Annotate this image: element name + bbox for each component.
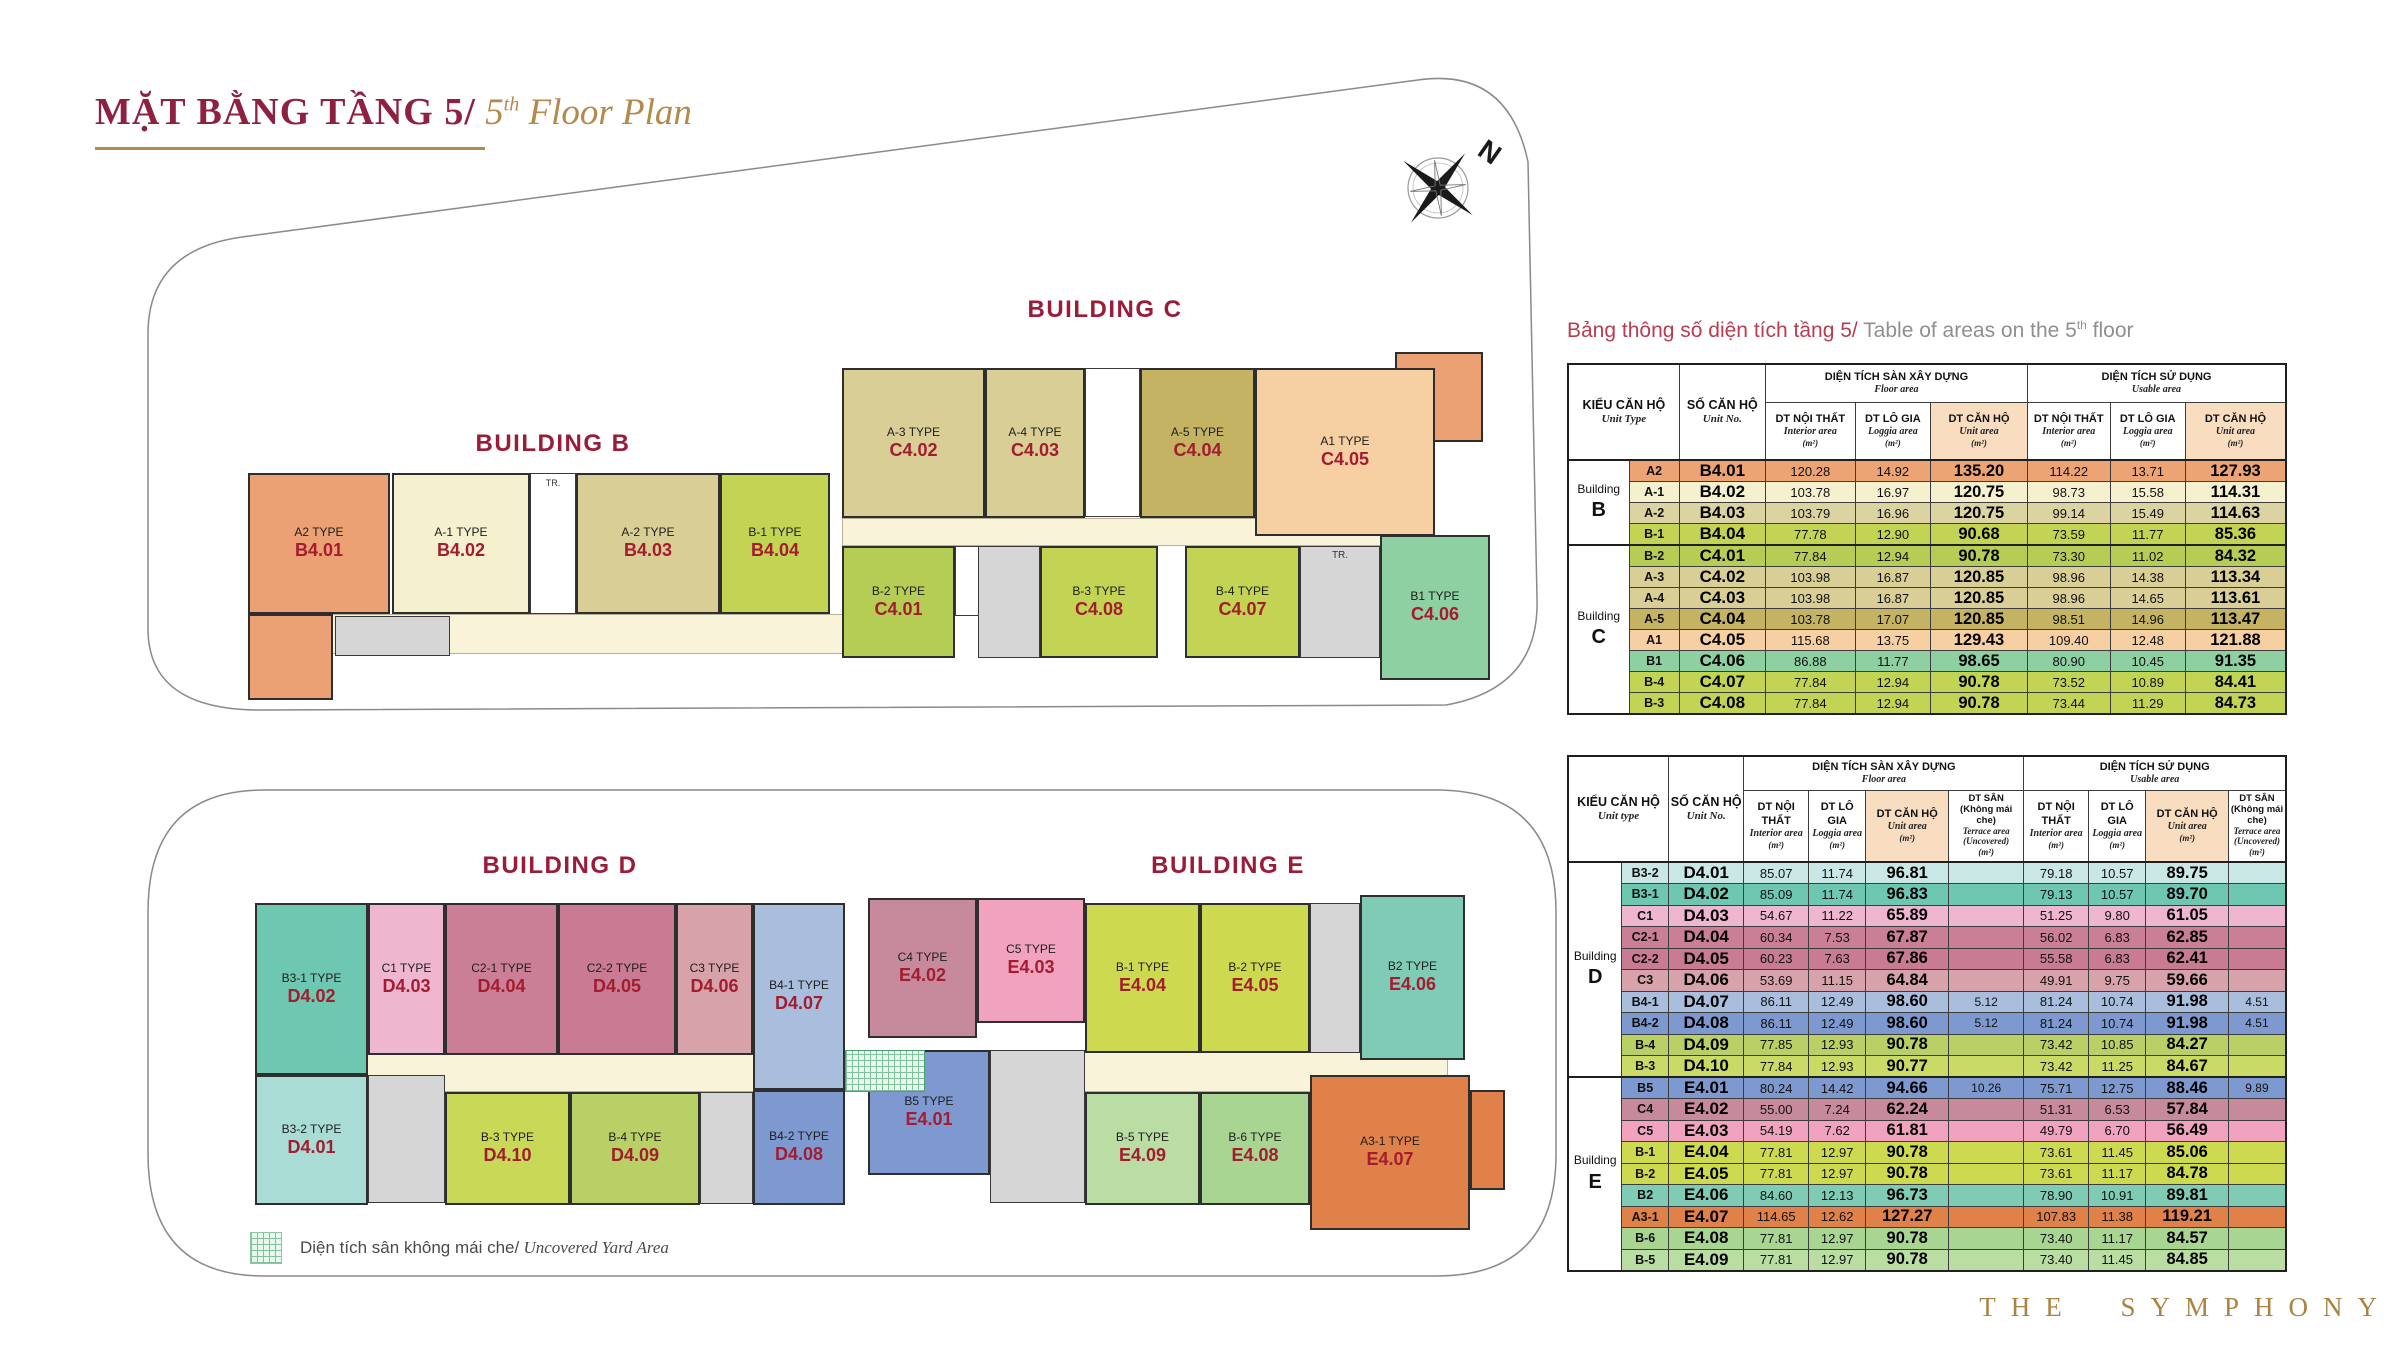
cell-value: 114.63 [2185, 503, 2286, 524]
unit-code-label: D4.01 [287, 1137, 335, 1158]
header-loggia-area: DT LÔ GIALoggia area(m²) [1855, 402, 1930, 460]
unit-type-label: B5 TYPE [904, 1095, 953, 1109]
cell-value [1948, 1249, 2023, 1271]
cell-value [1948, 862, 2023, 884]
unit-type-label: C5 TYPE [1006, 943, 1056, 957]
plan-unit-C4.01: B-2 TYPEC4.01 [842, 546, 955, 658]
cell-value: 81.24 [2024, 991, 2089, 1013]
cell-unit-no: E4.02 [1669, 1099, 1744, 1121]
cell-value [2228, 1206, 2286, 1228]
cell-value: 12.97 [1808, 1163, 1865, 1185]
header-interior-area: DT NỘI THẤTInterior area(m²) [1765, 402, 1855, 460]
cell-value: 79.13 [2024, 884, 2089, 906]
cell-unit-type: C5 [1622, 1120, 1669, 1142]
cell-value: 10.74 [2088, 991, 2145, 1013]
cell-value: 12.75 [2088, 1077, 2145, 1099]
table-row-D4.02: B3-1D4.0285.0911.7496.8379.1310.5789.70 [1568, 884, 2286, 906]
unit-code-label: E4.04 [1119, 975, 1166, 996]
unit-type-label: B4-2 TYPE [769, 1130, 829, 1144]
cell-value: 12.97 [1808, 1142, 1865, 1164]
cell-value: 78.90 [2024, 1185, 2089, 1207]
cell-value: 7.53 [1808, 927, 1865, 949]
unit-code-label: C4.07 [1218, 599, 1266, 620]
unit-code-label: B4.04 [751, 540, 799, 561]
table-row-E4.02: C4E4.0255.007.2462.2451.316.5357.84 [1568, 1099, 2286, 1121]
table-row-C4.06: B1C4.0686.8811.7798.6580.9010.4591.35 [1568, 651, 2286, 672]
cell-value: 73.44 [2027, 693, 2110, 715]
cell-value: 120.75 [1931, 482, 2028, 503]
cell-unit-no: B4.03 [1679, 503, 1765, 524]
cell-value: 77.85 [1744, 1034, 1809, 1056]
cell-unit-no: D4.10 [1669, 1056, 1744, 1078]
floor-plan-page: MẶT BẰNG TẦNG 5/ 5th Floor Plan N TR.TR.… [0, 0, 2400, 1349]
cell-value: 7.62 [1808, 1120, 1865, 1142]
plan-unit-D4.07: B4-1 TYPED4.07 [753, 903, 845, 1090]
cell-value: 86.11 [1744, 1013, 1809, 1035]
cell-value: 11.15 [1808, 970, 1865, 992]
unit-code-label: D4.06 [690, 976, 738, 997]
cell-value: 11.29 [2110, 693, 2185, 715]
cell-value: 77.81 [1744, 1142, 1809, 1164]
table-row-D4.07: B4-1D4.0786.1112.4998.605.1281.2410.7491… [1568, 991, 2286, 1013]
cell-unit-type: B4-1 [1622, 991, 1669, 1013]
cell-value: 10.85 [2088, 1034, 2145, 1056]
cell-value [2228, 1120, 2286, 1142]
header-unit-area: DT CĂN HỘUnit area(m²) [1931, 402, 2028, 460]
cell-unit-no: D4.03 [1669, 905, 1744, 927]
header-loggia-area: DT LÔ GIALoggia area(m²) [2088, 790, 2145, 862]
cell-unit-no: B4.01 [1679, 460, 1765, 482]
cell-unit-no: D4.09 [1669, 1034, 1744, 1056]
table-row-B4.02: A-1B4.02103.7816.97120.7598.7315.58114.3… [1568, 482, 2286, 503]
cell-unit-type: B-5 [1622, 1249, 1669, 1271]
cell-value: 91.98 [2146, 991, 2229, 1013]
cell-value: 4.51 [2228, 991, 2286, 1013]
unit-code-label: E4.01 [905, 1109, 952, 1130]
cell-unit-type: C4 [1622, 1099, 1669, 1121]
plan-unit-C4.02: A-3 TYPEC4.02 [842, 368, 985, 518]
table-row-B4.03: A-2B4.03103.7916.96120.7599.1415.49114.6… [1568, 503, 2286, 524]
cell-value [2228, 1099, 2286, 1121]
cell-value: 12.90 [1855, 524, 1930, 546]
cell-value: 75.71 [2024, 1077, 2089, 1099]
cell-value: 114.65 [1744, 1206, 1809, 1228]
yard-swatch-icon [250, 1232, 282, 1264]
cell-value: 67.86 [1866, 948, 1949, 970]
cell-value: 12.13 [1808, 1185, 1865, 1207]
cell-unit-no: E4.06 [1669, 1185, 1744, 1207]
cell-value: 57.84 [2146, 1099, 2229, 1121]
cell-unit-no: B4.04 [1679, 524, 1765, 546]
cell-value: 84.27 [2146, 1034, 2229, 1056]
table-row-C4.04: A-5C4.04103.7817.07120.8598.5114.96113.4… [1568, 609, 2286, 630]
cell-unit-type: A-5 [1629, 609, 1679, 630]
cell-value: 6.83 [2088, 948, 2145, 970]
unit-code-label: C4.06 [1411, 604, 1459, 625]
cell-value: 89.70 [2146, 884, 2229, 906]
cell-value: 73.40 [2024, 1228, 2089, 1250]
cell-unit-type: B-2 [1629, 545, 1679, 567]
cell-unit-type: B-6 [1622, 1228, 1669, 1250]
cell-value: 103.98 [1765, 588, 1855, 609]
compass-north-label: N [1473, 134, 1502, 171]
cell-value: 84.32 [2185, 545, 2286, 567]
unit-type-label: A3-1 TYPE [1360, 1135, 1420, 1149]
table-row-E4.08: B-6E4.0877.8112.9790.7873.4011.1784.57 [1568, 1228, 2286, 1250]
unit-code-label: D4.08 [775, 1144, 823, 1165]
cell-value: 55.00 [1744, 1099, 1809, 1121]
cell-value [2228, 1249, 2286, 1271]
plan-unit-D4.08: B4-2 TYPED4.08 [753, 1090, 845, 1205]
plan-unit-E4.03: C5 TYPEE4.03 [977, 898, 1085, 1023]
areas-table-buildings-d-e: KIỂU CĂN HỘUnit typeSỐ CĂN HỘUnit No.DIỆ… [1567, 755, 2287, 1272]
unit-code-label: D4.03 [382, 976, 430, 997]
cell-value: 103.78 [1765, 482, 1855, 503]
cell-value: 77.84 [1744, 1056, 1809, 1078]
plan-unit-E4.05: B-2 TYPEE4.05 [1200, 903, 1310, 1053]
unit-type-label: B-5 TYPE [1116, 1131, 1169, 1145]
cell-value: 11.45 [2088, 1249, 2145, 1271]
cell-value: 80.90 [2027, 651, 2110, 672]
header-interior-area: DT NỘI THẤTInterior area(m²) [2024, 790, 2089, 862]
table-row-E4.07: A3-1E4.07114.6512.62127.27107.8311.38119… [1568, 1206, 2286, 1228]
cell-value: 90.78 [1866, 1034, 1949, 1056]
plan-unit-D4.02: B3-1 TYPED4.02 [255, 903, 368, 1075]
cell-unit-no: C4.05 [1679, 630, 1765, 651]
cell-value: 127.27 [1866, 1206, 1949, 1228]
cell-unit-type: B-1 [1622, 1142, 1669, 1164]
cell-value: 85.09 [1744, 884, 1809, 906]
cell-value: 12.97 [1808, 1249, 1865, 1271]
plan-unit-E4.07: A3-1 TYPEE4.07 [1310, 1075, 1470, 1230]
cell-unit-no: C4.01 [1679, 545, 1765, 567]
cell-value: 89.81 [2146, 1185, 2229, 1207]
cell-value: 16.96 [1855, 503, 1930, 524]
cell-unit-no: E4.07 [1669, 1206, 1744, 1228]
cell-value: 12.93 [1808, 1034, 1865, 1056]
unit-type-label: A-3 TYPE [887, 426, 940, 440]
unit-type-label: B-6 TYPE [1228, 1131, 1281, 1145]
cell-value: 56.49 [2146, 1120, 2229, 1142]
cell-value [1948, 1163, 2023, 1185]
cell-value: 12.94 [1855, 693, 1930, 715]
cell-value: 16.87 [1855, 567, 1930, 588]
cell-value: 60.23 [1744, 948, 1809, 970]
cell-value: 113.34 [2185, 567, 2286, 588]
unit-type-label: B-3 TYPE [1072, 585, 1125, 599]
cell-value: 98.65 [1931, 651, 2028, 672]
cell-value: 120.85 [1931, 609, 2028, 630]
cell-value: 12.49 [1808, 1013, 1865, 1035]
areas-table-buildings-b-c: KIỂU CĂN HỘUnit TypeSỐ CĂN HỘUnit No.DIỆ… [1567, 363, 2287, 715]
cell-unit-type: A1 [1629, 630, 1679, 651]
cell-unit-type: B-1 [1629, 524, 1679, 546]
plan-unit-D4.09: B-4 TYPED4.09 [570, 1092, 700, 1205]
cell-value: 12.93 [1808, 1056, 1865, 1078]
cell-unit-type: C3 [1622, 970, 1669, 992]
compass-icon: N [1392, 124, 1502, 234]
cell-unit-type: B-3 [1629, 693, 1679, 715]
cell-value [2228, 1163, 2286, 1185]
unit-code-label: C4.03 [1011, 440, 1059, 461]
cell-value: 77.84 [1765, 545, 1855, 567]
cell-value: 90.78 [1866, 1142, 1949, 1164]
cell-value: 11.17 [2088, 1163, 2145, 1185]
plan-unit-C4.03: A-4 TYPEC4.03 [985, 368, 1085, 518]
unit-type-label: A-5 TYPE [1171, 426, 1224, 440]
cell-unit-type: B-4 [1622, 1034, 1669, 1056]
cell-value: 12.49 [1808, 991, 1865, 1013]
cell-value: 64.84 [1866, 970, 1949, 992]
table-row-E4.06: B2E4.0684.6012.1396.7378.9010.9189.81 [1568, 1185, 2286, 1207]
header-interior-area: DT NỘI THẤTInterior area(m²) [2027, 402, 2110, 460]
cell-value: 73.30 [2027, 545, 2110, 567]
unit-code-label: E4.07 [1366, 1149, 1413, 1170]
cell-unit-type: A-1 [1629, 482, 1679, 503]
cell-unit-no: E4.04 [1669, 1142, 1744, 1164]
building-group-cell: BuildingE [1568, 1077, 1622, 1271]
header-unit-no: SỐ CĂN HỘUnit No. [1679, 364, 1765, 460]
cell-value: 4.51 [2228, 1013, 2286, 1035]
unit-type-label: B4-1 TYPE [769, 979, 829, 993]
cell-value: 14.96 [2110, 609, 2185, 630]
cell-value: 11.25 [2088, 1056, 2145, 1078]
header-terrace-area: DT SÂN(Không mái che)Terrace area(Uncove… [2228, 790, 2286, 862]
unit-code-label: E4.09 [1119, 1145, 1166, 1166]
table-row-B4.04: B-1B4.0477.7812.9090.6873.5911.7785.36 [1568, 524, 2286, 546]
cell-value: 113.47 [2185, 609, 2286, 630]
cell-value: 6.53 [2088, 1099, 2145, 1121]
cell-value: 85.06 [2146, 1142, 2229, 1164]
unit-type-label: B-2 TYPE [872, 585, 925, 599]
cell-value [1948, 1142, 2023, 1164]
cell-value: 86.11 [1744, 991, 1809, 1013]
cell-value: 54.19 [1744, 1120, 1809, 1142]
table-row-C4.02: A-3C4.02103.9816.87120.8598.9614.38113.3… [1568, 567, 2286, 588]
cell-value: 90.78 [1931, 545, 2028, 567]
cell-value: 10.91 [2088, 1185, 2145, 1207]
unit-type-label: B3-2 TYPE [282, 1123, 342, 1137]
plan-unit-E4.06: B2 TYPEE4.06 [1360, 895, 1465, 1060]
cell-value: 16.97 [1855, 482, 1930, 503]
table-row-C4.01: BuildingCB-2C4.0177.8412.9490.7873.3011.… [1568, 545, 2286, 567]
cell-value: 94.66 [1866, 1077, 1949, 1099]
cell-unit-no: D4.04 [1669, 927, 1744, 949]
cell-unit-no: C4.03 [1679, 588, 1765, 609]
cell-value: 127.93 [2185, 460, 2286, 482]
cell-value: 84.41 [2185, 672, 2286, 693]
building-label: BUILDING E [1151, 852, 1305, 880]
legend-text: Diện tích sân không mái che/ Uncovered Y… [300, 1238, 669, 1258]
cell-value: 9.75 [2088, 970, 2145, 992]
cell-value: 98.96 [2027, 567, 2110, 588]
plan-unit-D4.06: C3 TYPED4.06 [676, 903, 753, 1055]
cell-value: 11.02 [2110, 545, 2185, 567]
header-unit-type: KIỂU CĂN HỘUnit Type [1568, 364, 1679, 460]
unit-type-label: B-4 TYPE [1216, 585, 1269, 599]
cell-value: 73.42 [2024, 1056, 2089, 1078]
cell-value: 96.73 [1866, 1185, 1949, 1207]
cell-value: 11.17 [2088, 1228, 2145, 1250]
cell-value: 7.63 [1808, 948, 1865, 970]
plan-unit-E4.04: B-1 TYPEE4.04 [1085, 903, 1200, 1053]
table-row-D4.01: BuildingDB3-2D4.0185.0711.7496.8179.1810… [1568, 862, 2286, 884]
cell-value: 77.81 [1744, 1163, 1809, 1185]
unit-extension [248, 614, 333, 700]
cell-value: 84.78 [2146, 1163, 2229, 1185]
cell-value: 73.61 [2024, 1163, 2089, 1185]
header-unit-no: SỐ CĂN HỘUnit No. [1669, 756, 1744, 862]
header-unit-type: KIỂU CĂN HỘUnit type [1568, 756, 1669, 862]
cell-value: 7.24 [1808, 1099, 1865, 1121]
cell-value: 96.83 [1866, 884, 1949, 906]
cell-value: 81.24 [2024, 1013, 2089, 1035]
cell-value: 88.46 [2146, 1077, 2229, 1099]
cell-value [1948, 927, 2023, 949]
header-loggia-area: DT LÔ GIALoggia area(m²) [1808, 790, 1865, 862]
cell-value: 14.65 [2110, 588, 2185, 609]
table-row-D4.03: C1D4.0354.6711.2265.8951.259.8061.05 [1568, 905, 2286, 927]
header-unit-area: DT CĂN HỘUnit area(m²) [1866, 790, 1949, 862]
cell-value: 135.20 [1931, 460, 2028, 482]
cell-value: 90.78 [1931, 693, 2028, 715]
cell-value: 90.78 [1866, 1249, 1949, 1271]
cell-value [1948, 1228, 2023, 1250]
cell-value: 10.57 [2088, 884, 2145, 906]
cell-value: 5.12 [1948, 991, 2023, 1013]
header-terrace-area: DT SÂN(Không mái che)Terrace area(Uncove… [1948, 790, 2023, 862]
cell-value: 77.84 [1765, 672, 1855, 693]
plan-unit-D4.01: B3-2 TYPED4.01 [255, 1075, 368, 1205]
areas-table-title: Bảng thông số diện tích tầng 5/ Table of… [1567, 318, 2134, 343]
cell-unit-type: A-4 [1629, 588, 1679, 609]
unit-extension [1470, 1090, 1505, 1190]
cell-value [1948, 1056, 2023, 1078]
cell-unit-type: B-3 [1622, 1056, 1669, 1078]
unit-type-label: B-1 TYPE [1116, 961, 1169, 975]
cell-value: 14.38 [2110, 567, 2185, 588]
cell-value: 55.58 [2024, 948, 2089, 970]
unit-type-label: B-1 TYPE [748, 526, 801, 540]
cell-value [1948, 1034, 2023, 1056]
table-row-C4.08: B-3C4.0877.8412.9490.7873.4411.2984.73 [1568, 693, 2286, 715]
cell-value: 84.67 [2146, 1056, 2229, 1078]
cell-unit-type: C2-1 [1622, 927, 1669, 949]
cell-value: 114.22 [2027, 460, 2110, 482]
cell-value: 56.02 [2024, 927, 2089, 949]
cell-unit-type: C1 [1622, 905, 1669, 927]
unit-type-label: B2 TYPE [1388, 960, 1437, 974]
unit-code-label: B4.01 [295, 540, 343, 561]
table-row-D4.06: C3D4.0653.6911.1564.8449.919.7559.66 [1568, 970, 2286, 992]
cell-value [2228, 948, 2286, 970]
cell-unit-no: D4.01 [1669, 862, 1744, 884]
cell-value: 9.80 [2088, 905, 2145, 927]
cell-value: 90.78 [1931, 672, 2028, 693]
cell-value: 59.66 [2146, 970, 2229, 992]
cell-value: 65.89 [1866, 905, 1949, 927]
unit-code-label: D4.09 [611, 1145, 659, 1166]
table-row-C4.05: A1C4.05115.6813.75129.43109.4012.48121.8… [1568, 630, 2286, 651]
cell-value: 6.70 [2088, 1120, 2145, 1142]
cell-value: 73.52 [2027, 672, 2110, 693]
cell-value: 121.88 [2185, 630, 2286, 651]
building-group-cell: BuildingB [1568, 460, 1629, 545]
cell-value: 60.34 [1744, 927, 1809, 949]
cell-value: 17.07 [1855, 609, 1930, 630]
table-row-C4.03: A-4C4.03103.9816.87120.8598.9614.65113.6… [1568, 588, 2286, 609]
unit-code-label: D4.02 [287, 986, 335, 1007]
stair-elevator-core [335, 616, 450, 656]
cell-value: 12.62 [1808, 1206, 1865, 1228]
cell-value [2228, 1056, 2286, 1078]
cell-value [1948, 1099, 2023, 1121]
cell-value: 98.73 [2027, 482, 2110, 503]
cell-value: 51.31 [2024, 1099, 2089, 1121]
cell-value [2228, 862, 2286, 884]
cell-value: 11.74 [1808, 884, 1865, 906]
unit-type-label: B-3 TYPE [481, 1131, 534, 1145]
cell-value [1948, 970, 2023, 992]
cell-unit-type: B-4 [1629, 672, 1679, 693]
cell-unit-type: B-2 [1622, 1163, 1669, 1185]
header-floor-area-group: DIỆN TÍCH SÀN XÂY DỰNGFloor area [1744, 756, 2024, 790]
cell-value: 49.91 [2024, 970, 2089, 992]
cell-value: 12.94 [1855, 672, 1930, 693]
table-row-E4.04: B-1E4.0477.8112.9790.7873.6111.4585.06 [1568, 1142, 2286, 1164]
cell-value: 90.68 [1931, 524, 2028, 546]
cell-value: 12.94 [1855, 545, 1930, 567]
cell-value: 11.45 [2088, 1142, 2145, 1164]
cell-value: 77.84 [1765, 693, 1855, 715]
cell-value: 10.57 [2088, 862, 2145, 884]
cell-unit-type: A3-1 [1622, 1206, 1669, 1228]
table-row-E4.05: B-2E4.0577.8112.9790.7873.6111.1784.78 [1568, 1163, 2286, 1185]
cell-value: 90.78 [1866, 1163, 1949, 1185]
cell-value: 119.21 [2146, 1206, 2229, 1228]
unit-code-label: B4.03 [624, 540, 672, 561]
cell-unit-type: B5 [1622, 1077, 1669, 1099]
cell-value: 103.98 [1765, 567, 1855, 588]
cell-unit-no: D4.07 [1669, 991, 1744, 1013]
unit-type-label: A1 TYPE [1320, 435, 1369, 449]
cell-value [2228, 970, 2286, 992]
cell-value: 79.18 [2024, 862, 2089, 884]
cell-value [1948, 948, 2023, 970]
unit-type-label: C2-1 TYPE [471, 962, 531, 976]
cell-value [2228, 1228, 2286, 1250]
unit-type-label: A-4 TYPE [1008, 426, 1061, 440]
cell-value: 61.05 [2146, 905, 2229, 927]
cell-value: 120.28 [1765, 460, 1855, 482]
building-group-cell: BuildingC [1568, 545, 1629, 714]
cell-value [2228, 884, 2286, 906]
header-unit-area: DT CĂN HỘUnit area(m²) [2146, 790, 2229, 862]
unit-type-label: B-2 TYPE [1228, 961, 1281, 975]
cell-value: 120.85 [1931, 588, 2028, 609]
plan-unit-C4.07: B-4 TYPEC4.07 [1185, 546, 1300, 658]
cell-unit-no: C4.02 [1679, 567, 1765, 588]
cell-value: 11.38 [2088, 1206, 2145, 1228]
cell-value: 90.78 [1866, 1228, 1949, 1250]
cell-unit-type: A2 [1629, 460, 1679, 482]
unit-code-label: C4.04 [1173, 440, 1221, 461]
plan-unit-B4.01: A2 TYPEB4.01 [248, 473, 390, 614]
cell-value: 73.61 [2024, 1142, 2089, 1164]
cell-value: 10.26 [1948, 1077, 2023, 1099]
unit-type-label: B1 TYPE [1410, 590, 1459, 604]
plan-unit-B4.04: B-1 TYPEB4.04 [720, 473, 830, 614]
